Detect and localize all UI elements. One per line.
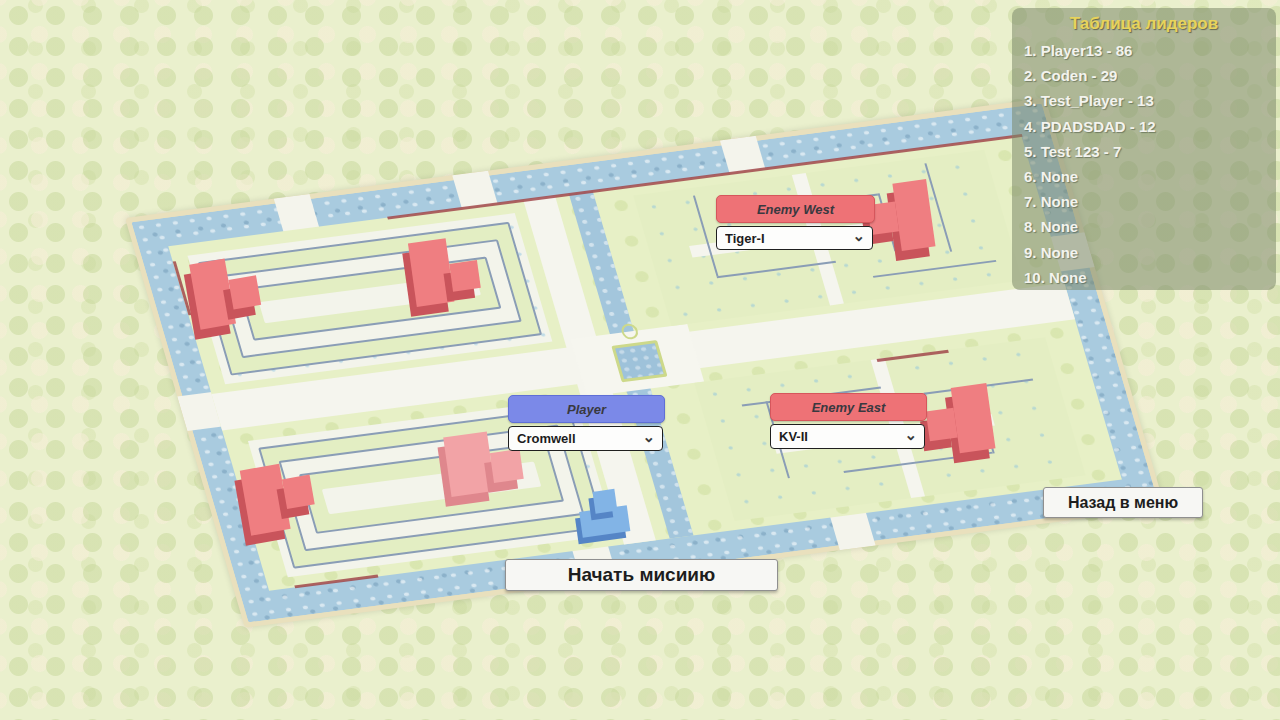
game-screen: Enemy West Tiger-I ⌄ Player Cromwell ⌄ E… [0,0,1280,720]
player-label: Player [567,402,606,417]
leaderboard-entry: 10. None [1012,265,1276,290]
enemy-east-header: Enemy East [770,393,927,421]
enemy-east-dropdown-wrap: KV-II ⌄ [770,424,925,449]
enemy-tank-northeast [856,172,958,274]
leaderboard-entry: 4. PDADSDAD - 12 [1012,114,1276,139]
enemy-west-header: Enemy West [716,195,875,223]
leaderboard-entry: 2. Coden - 29 [1012,63,1276,88]
start-mission-button[interactable]: Начать мисиию [505,559,778,591]
enemy-tank-southwest [229,451,333,555]
player-tank-select[interactable]: Cromwell [508,426,663,451]
leaderboard-entry: 5. Test 123 - 7 [1012,139,1276,164]
leaderboard-entry: 1. Player13 - 86 [1012,38,1276,63]
enemy-tank-east [916,374,1018,476]
leaderboard-entry: 7. None [1012,189,1276,214]
player-header: Player [508,395,665,423]
enemy-east-label: Enemy East [812,400,886,415]
enemy-west-label: Enemy West [757,202,834,217]
enemy-west-tank-select[interactable]: Tiger-I [716,226,873,250]
leaderboard-title: Таблица лидеров [1012,14,1276,34]
leaderboard-entry: 3. Test_Player - 13 [1012,88,1276,113]
enemy-tank-north [399,226,501,328]
leaderboard-entry: 8. None [1012,214,1276,239]
player-dropdown-wrap: Cromwell ⌄ [508,426,663,451]
enemy-tank-northwest [178,243,282,347]
leaderboard-entry: 6. None [1012,164,1276,189]
leaderboard-entry: 9. None [1012,240,1276,265]
back-to-menu-button[interactable]: Назад в меню [1043,487,1203,518]
enemy-east-tank-select[interactable]: KV-II [770,424,925,449]
leaderboard-panel: Таблица лидеров 1. Player13 - 86 2. Code… [1012,8,1276,290]
enemy-west-dropdown-wrap: Tiger-I ⌄ [716,226,873,250]
